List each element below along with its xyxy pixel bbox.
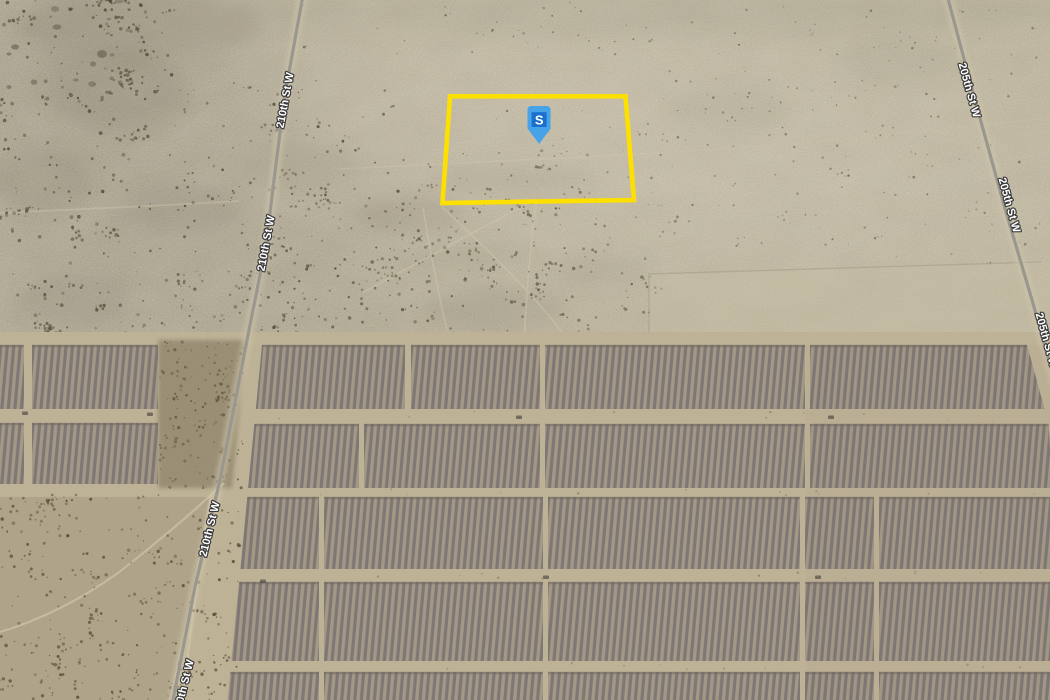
svg-text:S: S xyxy=(535,113,544,128)
